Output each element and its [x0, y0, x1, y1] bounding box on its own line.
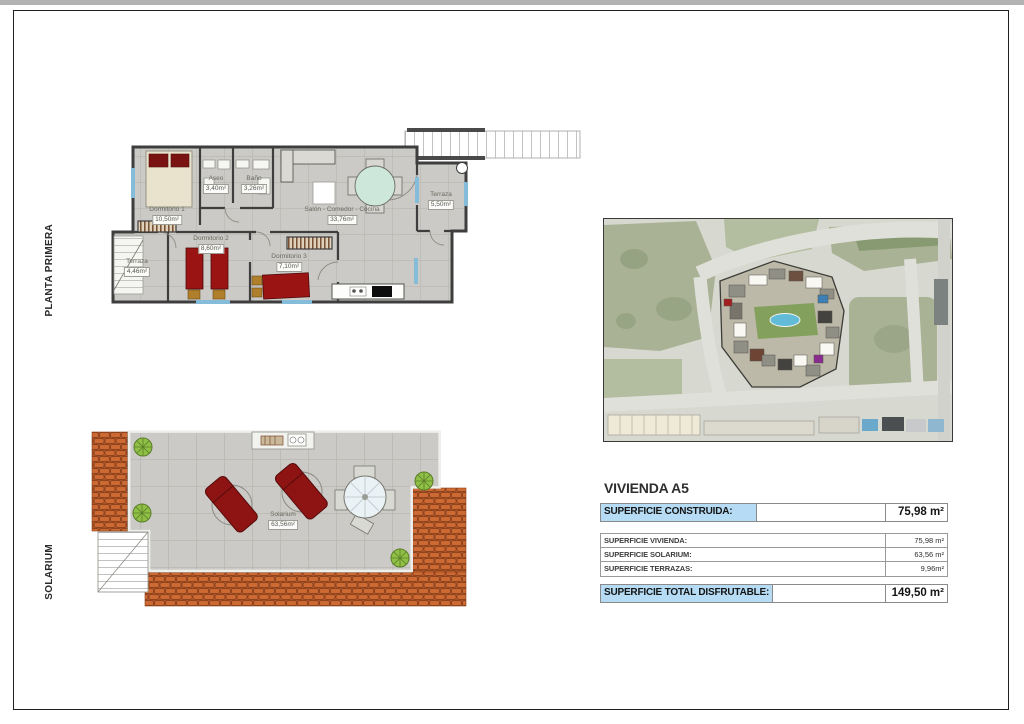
surface-detail-table: SUPERFICIE VIVIENDA: 75,98 m² SUPERFICIE… [600, 533, 948, 577]
plan-sheet: PLANTA PRIMERA SOLARIUM [0, 0, 1024, 724]
plant [415, 472, 433, 490]
screen-top-strip [0, 0, 1024, 5]
side-label-planta-text: PLANTA PRIMERA [44, 224, 55, 317]
column-marker [457, 163, 468, 174]
construida-value: 75,98 m² [885, 504, 947, 521]
room-label-bano: Baño 3,26m² [241, 175, 267, 194]
room-label-dormitorio2: Dormitorio 2 8,60m² [193, 235, 228, 254]
room-label-dormitorio3: Dormitorio 3 7,10m² [271, 253, 306, 272]
unit-title: VIVIENDA A5 [604, 480, 689, 496]
room-label-terraza-derecha: Terraza 5,50m² [428, 191, 454, 210]
bbq-counter [252, 432, 314, 449]
room-label-solarium: Solarium 63,56m² [268, 511, 298, 530]
row-superficie-total: SUPERFICIE TOTAL DISFRUTABLE: 149,50 m² [600, 584, 948, 603]
row-superficie-terrazas: SUPERFICIE TERRAZAS: 9,96m² [601, 562, 947, 576]
nightstand [252, 288, 262, 297]
room-label-salon: Salón - Comedor - Cocina 33,76m² [304, 206, 379, 225]
room-label-dormitorio1: Dormitorio 1 10,50m² [149, 206, 184, 225]
aerial-map-drawing [604, 219, 952, 441]
bed-double [146, 151, 192, 207]
bed-single [262, 273, 309, 299]
aerial-map [603, 218, 953, 442]
total-value: 149,50 m² [885, 585, 947, 602]
salon-table [313, 182, 335, 204]
construida-label: SUPERFICIE CONSTRUIDA: [601, 504, 757, 521]
nightstand [252, 276, 262, 285]
plant [134, 438, 152, 456]
row-superficie-construida: SUPERFICIE CONSTRUIDA: 75,98 m² [600, 503, 948, 522]
row-superficie-vivienda: SUPERFICIE VIVIENDA: 75,98 m² [601, 534, 947, 548]
wardrobe-dorm3 [287, 237, 332, 249]
room-label-terraza-izquierda: Terraza 4,46m² [124, 258, 150, 277]
row-superficie-solarium: SUPERFICIE SOLARIUM: 63,56 m² [601, 548, 947, 562]
side-label-solarium: SOLARIUM [44, 544, 55, 614]
exterior-stairs-strip [405, 128, 580, 160]
total-label: SUPERFICIE TOTAL DISFRUTABLE: [601, 585, 773, 602]
plant [391, 549, 409, 567]
room-label-aseo: Aseo 3,40m² [203, 175, 229, 194]
plant [133, 504, 151, 522]
side-label-planta-primera: PLANTA PRIMERA [44, 224, 55, 324]
side-label-solarium-text: SOLARIUM [44, 544, 55, 600]
kitchen-counter [332, 284, 404, 299]
solarium-stairs [98, 532, 148, 592]
